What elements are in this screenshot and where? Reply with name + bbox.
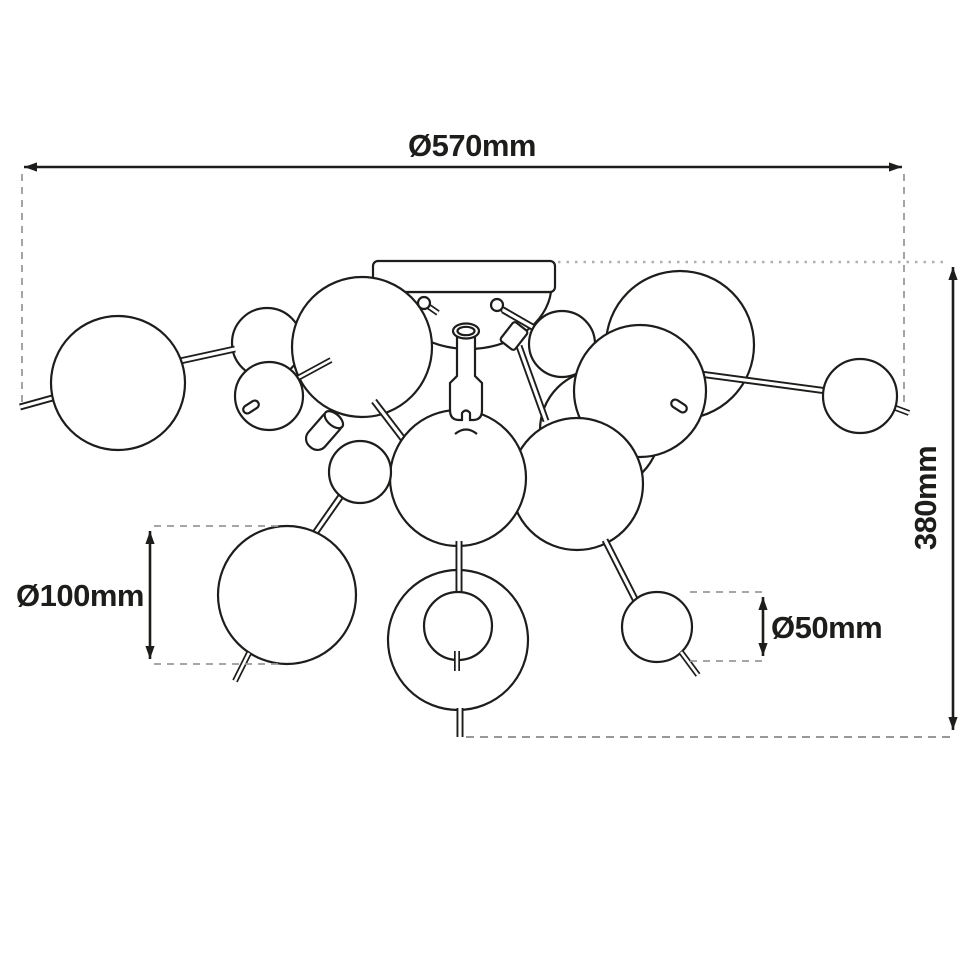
globe-far-right: [823, 359, 897, 433]
globe-center: [390, 410, 526, 546]
ring-globe-inner: [424, 592, 492, 660]
dimension-fixture-height: 380mm: [908, 267, 953, 730]
globe-left-lower-small: [235, 362, 303, 430]
ring-globe-assembly: [388, 541, 528, 737]
globe-center-left-small: [329, 441, 391, 503]
rod-to-100mm-globe: [313, 496, 341, 536]
globe-50mm: [622, 592, 692, 662]
dimension-label-overall-diameter: Ø570mm: [408, 128, 536, 163]
100mm-globe-stub: [235, 653, 249, 681]
drawing-canvas: Ø570mm 380mm: [0, 0, 970, 971]
left-globe-stub: [20, 397, 56, 407]
empty-socket-capsule: [302, 408, 346, 454]
dimension-small-globe: Ø50mm: [690, 592, 882, 661]
dimension-overall-diameter: Ø570mm: [24, 128, 902, 167]
globe-lower-right: [511, 418, 643, 550]
small-globe-stub: [681, 652, 698, 675]
rod-to-small-globe: [605, 540, 637, 603]
globe-top-left-large: [292, 277, 432, 417]
dimension-label-small-globe: Ø50mm: [771, 610, 882, 645]
lamp-fixture: [20, 261, 909, 737]
rod-left-cluster: [180, 349, 235, 361]
dimension-label-large-globe: Ø100mm: [16, 578, 144, 613]
lamp-dimension-drawing: Ø570mm 380mm: [0, 0, 970, 971]
dimension-label-fixture-height: 380mm: [908, 446, 943, 550]
globe-far-left: [51, 316, 185, 450]
globe-100mm: [218, 526, 356, 664]
